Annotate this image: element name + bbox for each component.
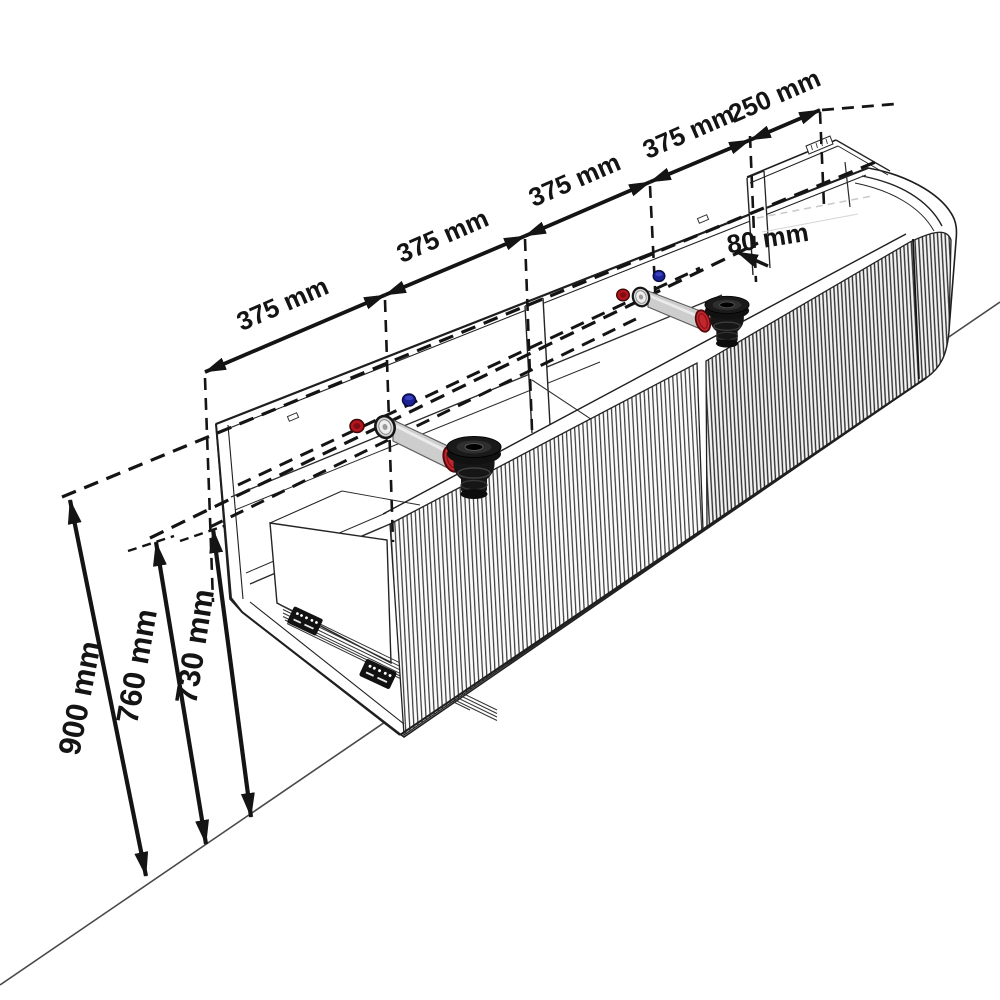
cold-water-valve <box>403 394 416 406</box>
dim-width-4: 375 mm <box>638 99 739 165</box>
vanity-dimension-diagram: 375 mm 375 mm 375 mm 375 mm 250 mm 80 mm… <box>0 0 1000 1000</box>
hot-water-valve <box>617 289 630 301</box>
cold-water-valve <box>653 271 665 282</box>
dim-width-2: 375 mm <box>392 203 493 269</box>
diagram-canvas: 375 mm 375 mm 375 mm 375 mm 250 mm 80 mm… <box>0 0 1000 1000</box>
tick-730 <box>180 526 224 541</box>
hot-water-valve <box>350 420 364 433</box>
chain-extension-dash <box>822 104 895 110</box>
dim-height-760: 760 mm <box>109 606 164 726</box>
dim-width-5: 250 mm <box>724 63 825 129</box>
dim-height-900: 900 mm <box>51 638 107 758</box>
dim-width-3: 375 mm <box>524 147 625 213</box>
dim-width-1: 375 mm <box>232 271 333 337</box>
dim-height-730: 730 mm <box>168 587 221 707</box>
